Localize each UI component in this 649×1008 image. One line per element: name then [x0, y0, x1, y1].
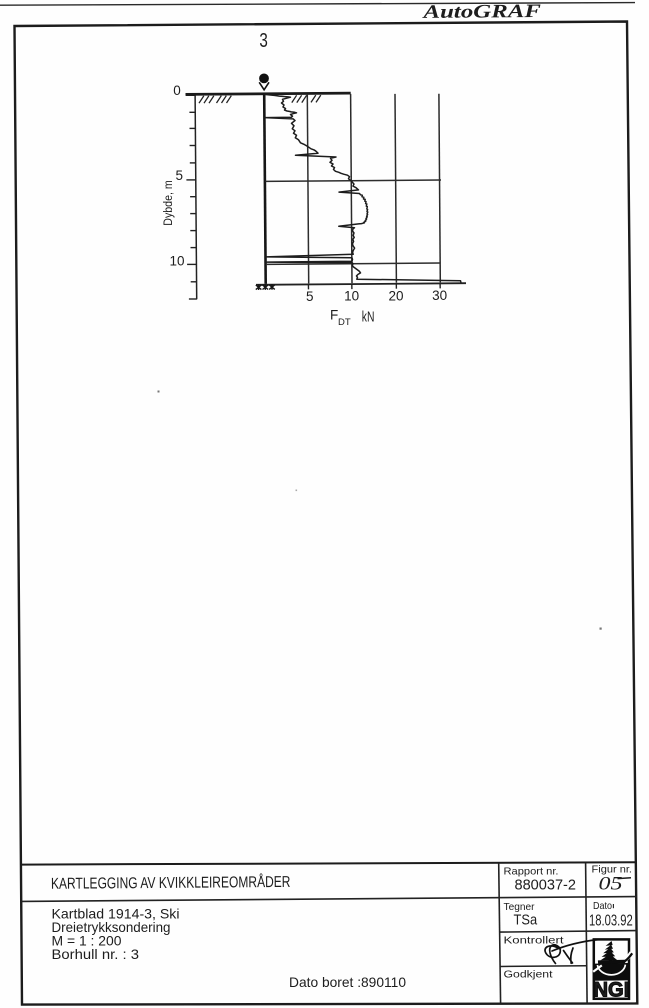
svg-text:10: 10 [169, 254, 184, 269]
svg-text:KARTLEGGING AV KVIKKLEIREOMRÅD: KARTLEGGING AV KVIKKLEIREOMRÅDER [51, 872, 291, 892]
svg-text:DT: DT [338, 317, 351, 328]
svg-text:880037-2: 880037-2 [515, 877, 577, 894]
svg-text:F: F [330, 308, 338, 323]
svg-text:Dato boret :890110: Dato boret :890110 [289, 975, 406, 990]
svg-text:AutoGRAF: AutoGRAF [421, 0, 541, 22]
svg-text:NGI: NGI [594, 978, 630, 1001]
svg-text:Dato: Dato [593, 900, 612, 912]
svg-text:Godkjent: Godkjent [504, 969, 553, 981]
svg-text:kN: kN [362, 309, 375, 325]
svg-text:TSa: TSa [514, 911, 538, 928]
svg-text:30: 30 [432, 288, 447, 303]
svg-text:10: 10 [344, 289, 359, 304]
svg-text:Borhull nr. : 3: Borhull nr. : 3 [52, 947, 140, 962]
svg-text:Dybde, m: Dybde, m [163, 180, 176, 225]
svg-text:0: 0 [173, 83, 181, 98]
svg-text:20: 20 [388, 288, 403, 303]
svg-text:5: 5 [175, 168, 183, 183]
svg-text:05: 05 [599, 874, 623, 895]
svg-text:18.03.92: 18.03.92 [589, 912, 633, 929]
svg-text:3: 3 [259, 29, 268, 52]
svg-text:5: 5 [306, 289, 314, 304]
